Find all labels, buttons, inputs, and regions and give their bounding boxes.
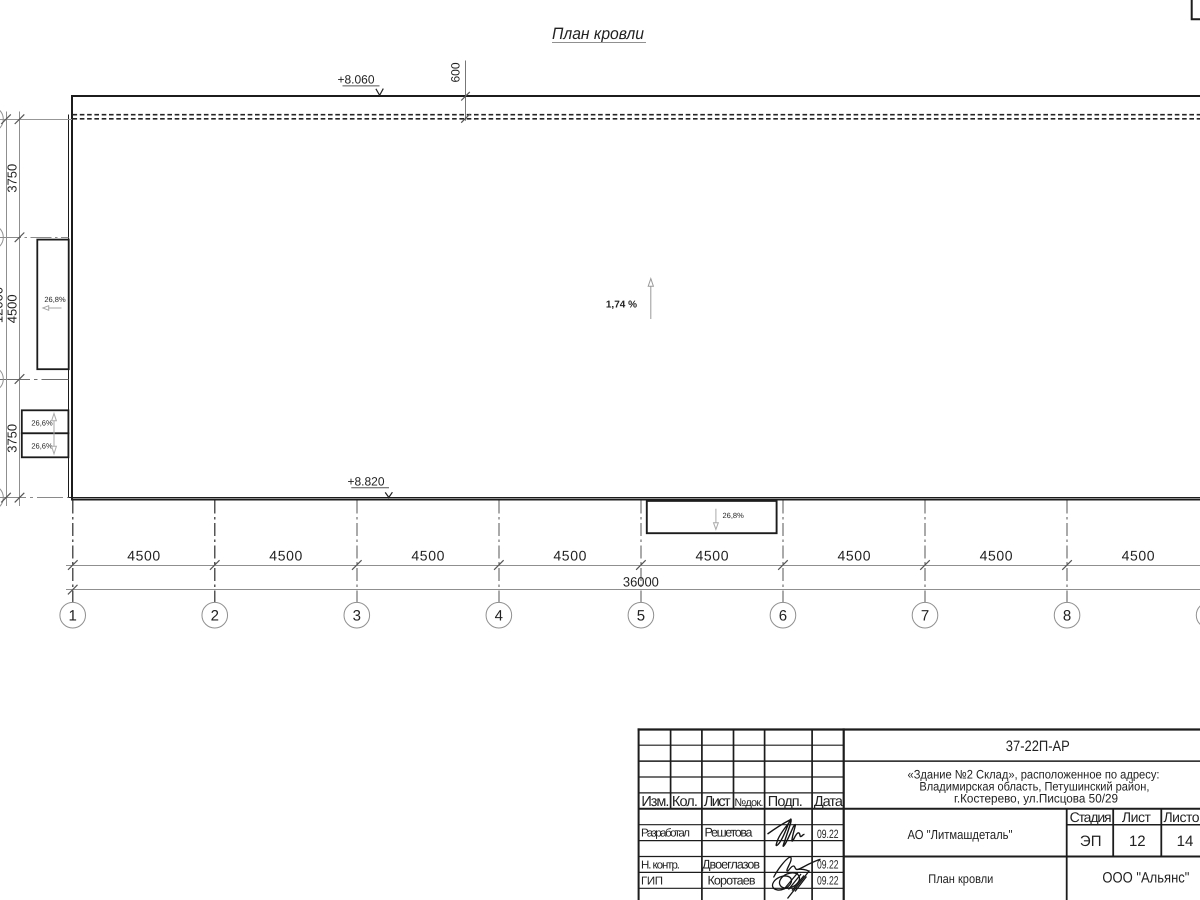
svg-text:Изм.: Изм. xyxy=(641,794,669,810)
svg-text:г.Костерево, ул.Писцова 50/29: г.Костерево, ул.Писцова 50/29 xyxy=(954,792,1118,806)
svg-text:Н. контр.: Н. контр. xyxy=(641,859,680,871)
svg-text:14: 14 xyxy=(1177,833,1194,850)
svg-text:ЭП: ЭП xyxy=(1080,833,1102,850)
svg-text:Кол.: Кол. xyxy=(672,794,698,810)
svg-text:26,6%: 26,6% xyxy=(31,419,53,428)
svg-text:3: 3 xyxy=(353,607,361,624)
svg-text:4500: 4500 xyxy=(980,548,1013,564)
svg-text:Коротаев: Коротаев xyxy=(708,873,756,887)
svg-text:5: 5 xyxy=(637,607,645,624)
svg-text:26,6%: 26,6% xyxy=(31,441,53,450)
svg-text:Стадия: Стадия xyxy=(1070,809,1112,825)
svg-text:Лист: Лист xyxy=(1122,809,1152,825)
svg-text:4500: 4500 xyxy=(838,548,871,564)
svg-text:09.22: 09.22 xyxy=(817,874,839,888)
svg-text:4: 4 xyxy=(495,607,503,624)
svg-text:8: 8 xyxy=(1063,607,1071,624)
svg-text:1,74 %: 1,74 % xyxy=(606,300,637,311)
svg-text:7: 7 xyxy=(921,607,929,624)
svg-text:АО "Литмашдеталь": АО "Литмашдеталь" xyxy=(908,827,1013,842)
svg-text:План кровли: План кровли xyxy=(928,872,993,886)
svg-text:2: 2 xyxy=(211,607,219,624)
svg-text:26,8%: 26,8% xyxy=(44,295,66,304)
svg-text:4500: 4500 xyxy=(1122,548,1155,564)
svg-text:12: 12 xyxy=(1129,833,1146,850)
svg-text:+8.060: +8.060 xyxy=(337,73,374,87)
svg-text:Лист: Лист xyxy=(704,794,731,810)
svg-text:ГИП: ГИП xyxy=(641,875,663,887)
svg-text:4500: 4500 xyxy=(696,548,729,564)
svg-text:4500: 4500 xyxy=(5,294,20,323)
svg-text:№док.: №док. xyxy=(734,797,763,809)
svg-text:4500: 4500 xyxy=(269,548,302,564)
svg-text:Разработал: Разработал xyxy=(641,828,690,840)
svg-text:Дата: Дата xyxy=(814,794,844,810)
svg-text:3750: 3750 xyxy=(5,164,20,193)
svg-text:26,8%: 26,8% xyxy=(723,511,745,520)
svg-text:Листов: Листов xyxy=(1164,809,1200,825)
svg-text:Решетова: Решетова xyxy=(705,826,753,840)
svg-text:36000: 36000 xyxy=(623,575,659,590)
svg-text:ООО "Альянс": ООО "Альянс" xyxy=(1102,869,1189,886)
svg-text:Подп.: Подп. xyxy=(768,794,803,810)
svg-text:4500: 4500 xyxy=(411,548,444,564)
svg-text:+8.820: +8.820 xyxy=(347,475,384,489)
svg-text:План кровли: План кровли xyxy=(552,25,644,43)
svg-text:4500: 4500 xyxy=(553,548,586,564)
svg-text:1: 1 xyxy=(69,607,77,624)
svg-text:12000: 12000 xyxy=(0,287,6,323)
svg-text:3750: 3750 xyxy=(5,424,20,453)
svg-text:37-22П-АР: 37-22П-АР xyxy=(1006,738,1070,755)
svg-text:Двоеглазов: Двоеглазов xyxy=(702,857,760,871)
svg-text:09.22: 09.22 xyxy=(817,827,839,841)
svg-text:600: 600 xyxy=(449,62,463,82)
svg-text:4500: 4500 xyxy=(127,548,160,564)
svg-text:6: 6 xyxy=(779,607,787,624)
